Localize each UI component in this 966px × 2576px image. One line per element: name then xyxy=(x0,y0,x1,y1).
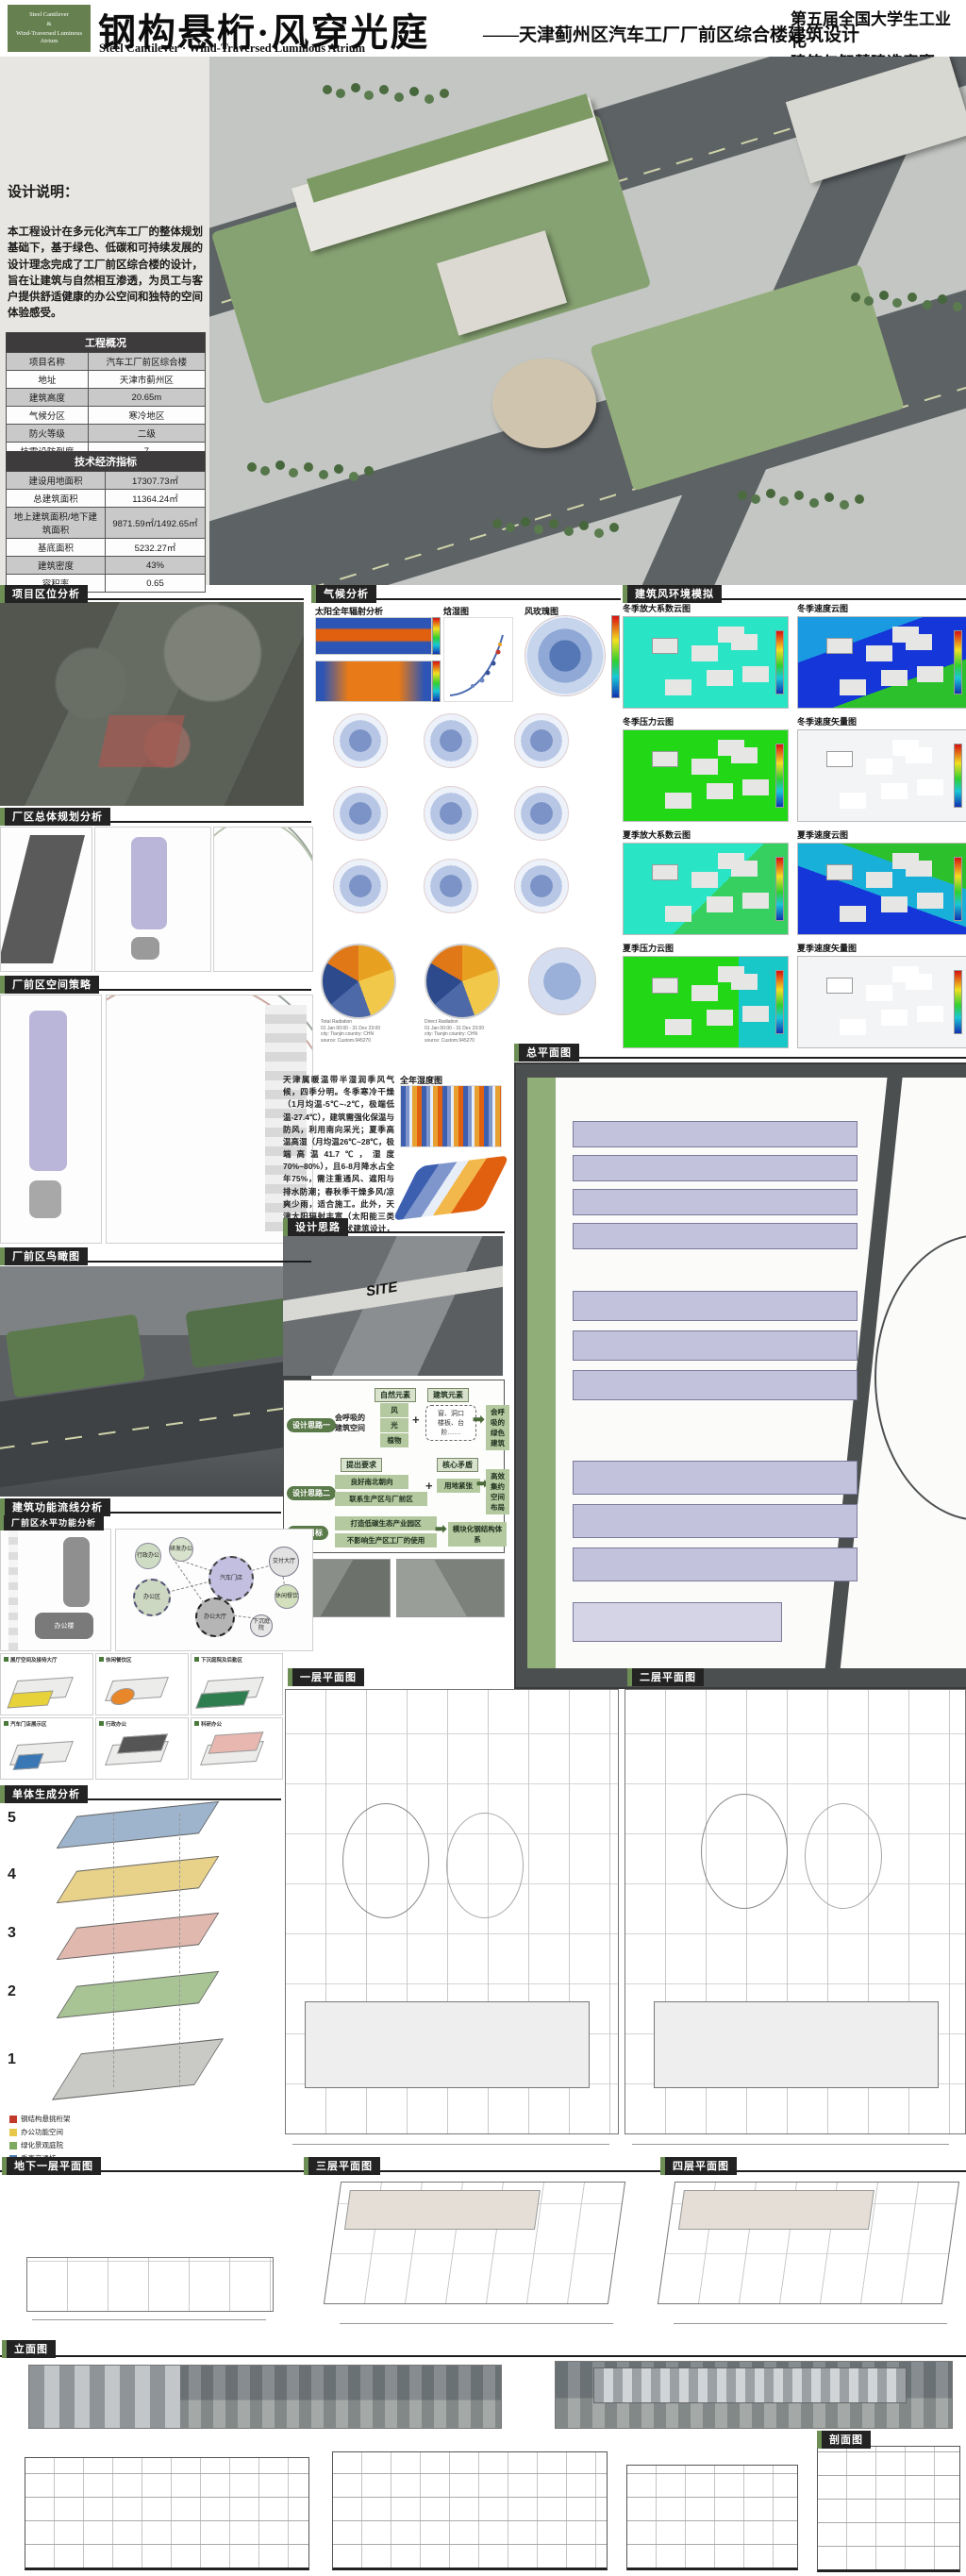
table-title: 技术经济指标 xyxy=(7,452,206,472)
dome-caption-direct: Direct Radiation 01 Jan 00:00 - 31 Dec 2… xyxy=(425,1019,509,1044)
elevation-drawing xyxy=(555,2361,953,2429)
section-drawing xyxy=(626,2465,798,2570)
table-row: 地上建筑面积/地下建筑面积9871.59㎡/1492.65㎡ xyxy=(7,508,206,539)
section-drawing-tall xyxy=(817,2446,960,2572)
cfd-panel: 冬季压力云图 xyxy=(623,715,787,822)
section-title-master-planning: 厂区总体规划分析 xyxy=(0,808,110,826)
table-row: 项目名称汽车工厂前区综合楼 xyxy=(7,353,206,371)
title-badge: Steel Cantilever & Wind-Traversed Lumino… xyxy=(8,5,91,52)
legend-item: 办公功能空间 xyxy=(9,2127,71,2137)
psychrometric-curve xyxy=(444,618,512,701)
cfd-panel: 冬季速度矢量图 xyxy=(797,715,965,822)
function-axon: 科研办公 xyxy=(191,1717,283,1780)
humidity-chart-title: 全年湿度图 xyxy=(400,1074,442,1086)
section-title-function: 建筑功能流线分析 xyxy=(0,1498,110,1516)
site-photo: SITE xyxy=(283,1236,503,1376)
section-title-floor2: 二层平面图 xyxy=(627,1668,704,1686)
cfd-panel: 夏季速度云图 xyxy=(797,828,965,935)
annual-radiation-chart-2 xyxy=(315,661,432,702)
badge-line: & xyxy=(8,21,91,28)
floor3-plan xyxy=(324,2182,625,2304)
function-axon: 展厅空间及接待大厅 xyxy=(0,1653,93,1715)
planning-diagram xyxy=(213,827,313,972)
section-title-section: 剖面图 xyxy=(817,2431,871,2449)
round-pavilion xyxy=(492,359,596,448)
site-highlight xyxy=(98,715,185,767)
cfd-panel: 夏季放大系数云图 xyxy=(623,828,787,935)
radiation-ribbon-chart xyxy=(392,1155,510,1220)
sky-dome-chart xyxy=(528,947,596,1015)
master-plan-drawing xyxy=(514,1062,966,1689)
sub-label-radiation: 太阳全年辐射分析 xyxy=(315,605,383,617)
legend-item: 绿化景观庭院 xyxy=(9,2140,71,2150)
table-row: 总建筑面积11364.24㎡ xyxy=(7,490,206,508)
cfd-panel: 夏季速度矢量图 xyxy=(797,942,965,1048)
table-row: 基底面积5232.27㎡ xyxy=(7,539,206,557)
section-drawing xyxy=(25,2457,309,2570)
annual-humidity-chart xyxy=(400,1085,502,1147)
technical-indicator-table: 技术经济指标 建设用地面积17307.73㎡ 总建筑面积11364.24㎡ 地上… xyxy=(6,451,206,593)
cfd-panel: 冬季放大系数云图 xyxy=(623,602,787,709)
table-row: 地址天津市蓟州区 xyxy=(7,371,206,389)
building-tag: 办公楼 xyxy=(35,1613,93,1639)
project-overview-table: 工程概况 项目名称汽车工厂前区综合楼 地址天津市蓟州区 建筑高度20.65m 气… xyxy=(6,332,206,460)
page-title-en: Steel Cantilever · Wind-Traversed Lumino… xyxy=(99,42,365,56)
strategy-diagram xyxy=(106,995,313,1244)
direct-radiation-dome xyxy=(425,944,500,1019)
massing-exploded-axon: 5 4 3 2 1 xyxy=(0,1804,281,2108)
dome-caption-total: Total Radiation 01 Jan 00:00 - 31 Dec 23… xyxy=(321,1019,406,1044)
sub-title-horizontal-function: 厂前区水平功能分析 xyxy=(0,1515,104,1531)
elevation-drawing xyxy=(28,2365,502,2429)
table-row: 建设用地面积17307.73㎡ xyxy=(7,472,206,490)
legend-item: 钢结构悬挑桁架 xyxy=(9,2114,71,2124)
design-note-heading: 设计说明： xyxy=(8,181,78,201)
function-axon: 行政办公 xyxy=(95,1717,189,1780)
wind-rose-chart xyxy=(525,615,606,696)
section-title-floor1: 一层平面图 xyxy=(288,1668,364,1686)
function-axon: 汽车门店展示区 xyxy=(0,1717,93,1780)
table-row: 建筑密度43% xyxy=(7,557,206,575)
badge-line: Steel Cantilever xyxy=(8,11,91,19)
section-title-design-idea: 设计思路 xyxy=(283,1218,348,1236)
section-title-climate: 气候分析 xyxy=(311,585,376,603)
section-title-master-plan: 总平面图 xyxy=(514,1044,579,1062)
cfd-panel: 冬季速度云图 xyxy=(797,602,965,709)
entry-perspective-render xyxy=(0,1266,311,1497)
section-title-location: 项目区位分析 xyxy=(0,585,88,603)
sub-label-windrose: 风玫瑰图 xyxy=(525,605,558,617)
table-row: 气候分区寒冷地区 xyxy=(7,407,206,425)
table-row: 防火等级二级 xyxy=(7,425,206,443)
planning-diagram xyxy=(0,827,92,972)
floor4-plan xyxy=(658,2182,959,2304)
floor2-plan xyxy=(625,1689,966,2134)
planning-diagram xyxy=(94,827,211,972)
section-title-entry-view: 厂前区鸟瞰图 xyxy=(0,1247,88,1265)
floor1-plan xyxy=(285,1689,619,2134)
section-title-space-strategy: 厂前区空间策略 xyxy=(0,976,99,994)
cfd-panel: 夏季压力云图 xyxy=(623,942,787,1048)
function-axon: 下沉庭院及后勤区 xyxy=(191,1653,283,1715)
annual-radiation-chart-1 xyxy=(315,617,432,655)
function-bubble-diagram: 汽车门店 办公区 办公大厅 行政办公 研发办公 交付大厅 休闲餐饮 下沉庭院 xyxy=(115,1529,313,1651)
flow-tag: 设计思路一 xyxy=(287,1418,336,1432)
design-flowchart: 设计思路一 会呼吸的 建筑空间 自然元素 风 光 植物 + 建筑元素 窗、洞口 … xyxy=(283,1380,505,1553)
design-note-body: 本工程设计在多元化汽车工厂的整体规划基础下，基于绿色、低碳和可持续发展的设计理念… xyxy=(8,225,203,323)
concept-photo xyxy=(396,1559,505,1617)
sub-label-psychrometric: 焓湿图 xyxy=(443,605,469,617)
section-title-basement: 地下一层平面图 xyxy=(2,2157,101,2175)
aerial-render xyxy=(209,57,966,585)
monthly-wind-roses xyxy=(315,710,608,940)
section-title-massing: 单体生成分析 xyxy=(0,1785,88,1803)
psychrometric-chart xyxy=(443,617,513,702)
location-satellite-map xyxy=(0,602,304,806)
competition-board: Steel Cantilever & Wind-Traversed Lumino… xyxy=(0,0,966,2576)
section-title-floor3: 三层平面图 xyxy=(304,2157,380,2175)
strategy-diagram xyxy=(0,995,102,1244)
table-row: 建筑高度20.65m xyxy=(7,389,206,407)
section-drawing xyxy=(332,2451,608,2570)
basement-plan xyxy=(26,2257,274,2312)
function-axon: 休闲餐饮区 xyxy=(95,1653,189,1715)
badge-line: Wind-Traversed Luminous Atrium xyxy=(8,30,91,45)
flow-tag: 设计思路二 xyxy=(287,1486,336,1500)
section-title-wind: 建筑风环境模拟 xyxy=(623,585,722,603)
function-plan-diagram: 办公楼 xyxy=(0,1529,111,1651)
section-title-elevation: 立面图 xyxy=(2,2340,56,2358)
total-radiation-dome xyxy=(321,944,396,1019)
table-title: 工程概况 xyxy=(7,333,206,353)
section-title-floor4: 四层平面图 xyxy=(660,2157,737,2175)
